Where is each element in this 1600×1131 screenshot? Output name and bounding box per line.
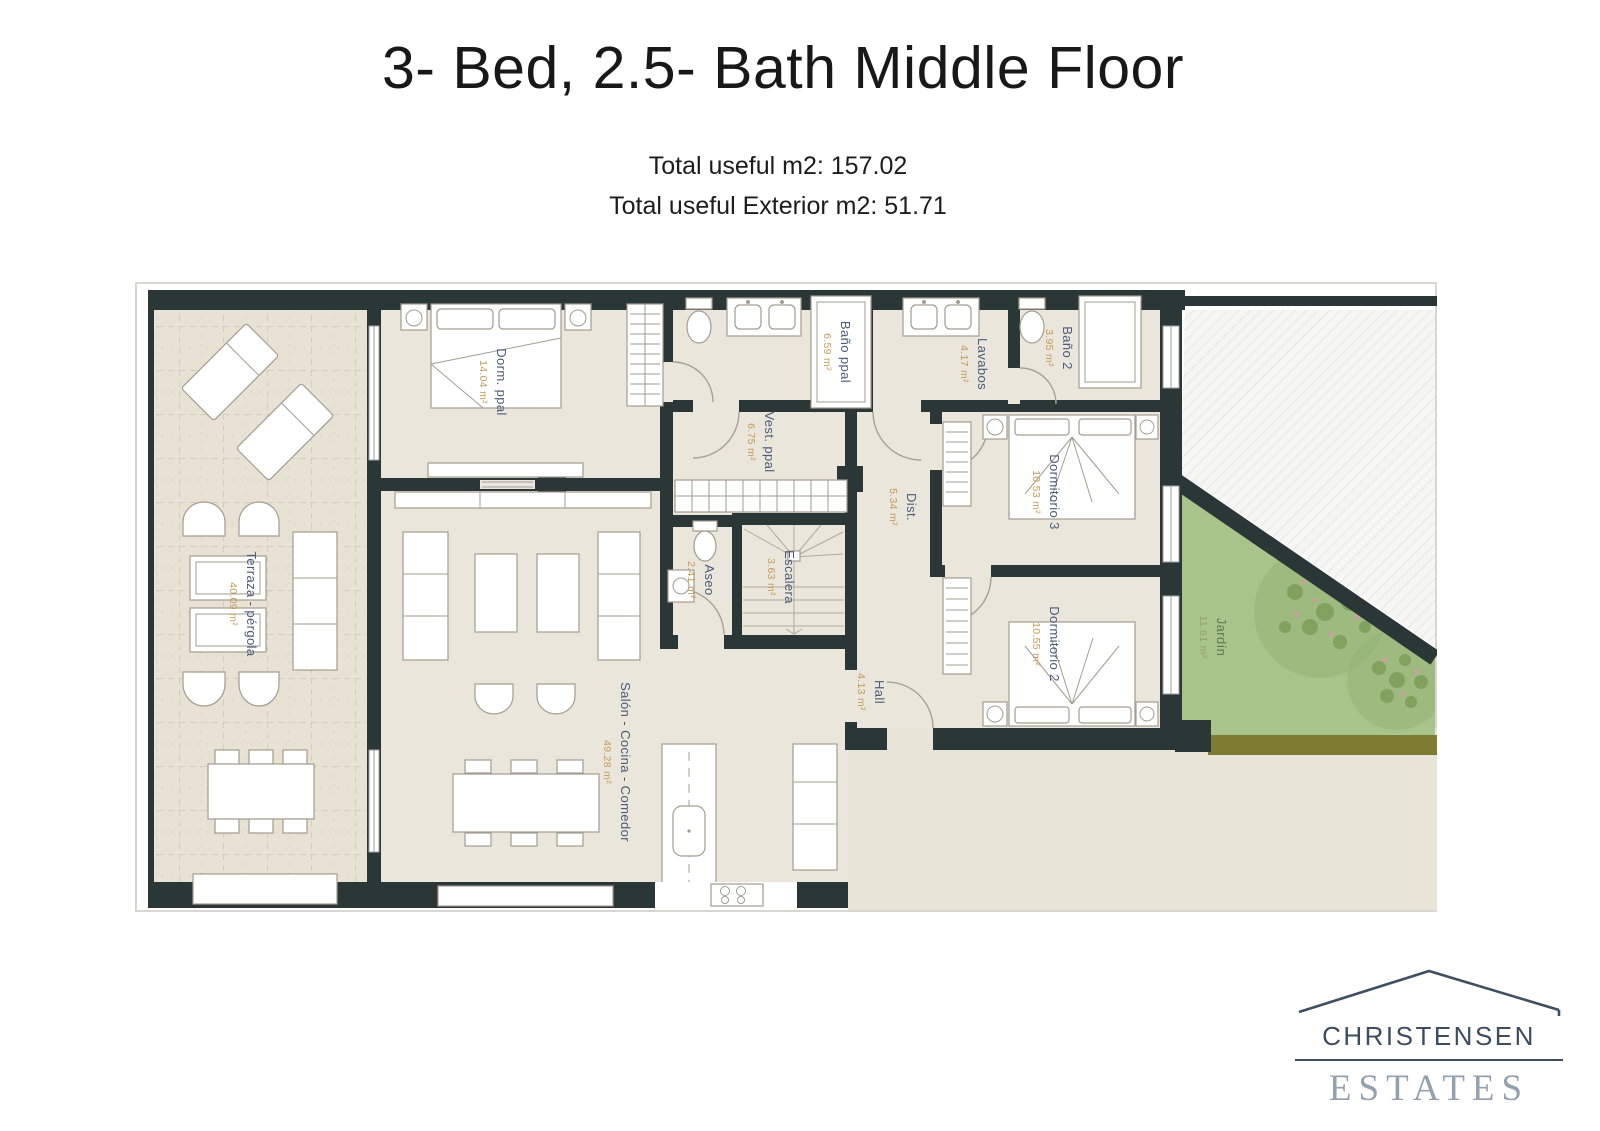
table-icon [208, 764, 314, 819]
wardrobe-icon [627, 304, 663, 406]
planter-icon [293, 532, 337, 670]
nightstand-icon [1136, 702, 1158, 726]
svg-text:4.13 m²: 4.13 m² [855, 673, 867, 711]
window-icon [369, 750, 379, 852]
table-icon [453, 774, 599, 832]
svg-text:Dormitorio 2: Dormitorio 2 [1047, 606, 1062, 682]
svg-text:Jardín: Jardín [1214, 618, 1229, 657]
logo-type: ESTATES [1295, 1067, 1563, 1110]
nightstand-icon [1136, 415, 1158, 439]
armchair-icon [475, 684, 513, 714]
total-useful-m2: Total useful m2: 157.02 [0, 146, 1556, 186]
floor-plan-container: Terraza - pérgola 40.09 m² Dorm. ppal 14… [135, 282, 1437, 912]
svg-text:11.61 m²: 11.61 m² [1197, 615, 1209, 658]
window-icon [1163, 596, 1179, 694]
svg-text:Aseo: Aseo [702, 564, 717, 595]
svg-text:Lavabos: Lavabos [975, 338, 990, 390]
armchair-icon [239, 502, 279, 536]
armchair-icon [537, 684, 575, 714]
svg-text:Terraza - pérgola: Terraza - pérgola [244, 551, 259, 656]
kitchen-island-icon [662, 744, 716, 892]
svg-text:3.95 m²: 3.95 m² [1043, 329, 1055, 367]
logo-roof-icon [1295, 966, 1563, 1016]
sideboard-icon [428, 463, 583, 477]
toilet-icon [693, 521, 717, 561]
wardrobe-icon [943, 578, 971, 674]
planter-icon [193, 874, 337, 904]
svg-text:5.34 m²: 5.34 m² [887, 488, 899, 526]
svg-text:Escalera: Escalera [782, 550, 797, 604]
armchair-icon [183, 502, 225, 536]
shower-icon [1079, 296, 1141, 388]
wall-top-right [1181, 296, 1437, 306]
counter-icon [438, 886, 613, 906]
dining-set [453, 760, 599, 846]
svg-text:49.28 m²: 49.28 m² [601, 740, 613, 784]
svg-text:Hall: Hall [872, 680, 887, 704]
walkin-closet [675, 480, 847, 512]
stove-icon [655, 882, 797, 908]
svg-text:10.53 m²: 10.53 m² [1030, 470, 1042, 514]
svg-text:4.17 m²: 4.17 m² [958, 345, 970, 383]
svg-text:Dormitorio 3: Dormitorio 3 [1047, 454, 1062, 530]
svg-text:10.55 m²: 10.55 m² [1030, 622, 1042, 666]
svg-text:6.75 m²: 6.75 m² [745, 423, 757, 461]
svg-text:Dorm. ppal: Dorm. ppal [494, 348, 509, 416]
svg-text:14.04 m²: 14.04 m² [477, 360, 489, 404]
double-sink-icon [727, 298, 801, 336]
floor-plan: Terraza - pérgola 40.09 m² Dorm. ppal 14… [135, 282, 1437, 912]
toilet-icon [1019, 298, 1045, 343]
svg-text:Vest. ppal: Vest. ppal [762, 411, 777, 472]
double-sink-icon [903, 298, 979, 336]
svg-text:Baño 2: Baño 2 [1060, 326, 1075, 370]
wardrobe-icon [943, 422, 971, 506]
svg-text:Dist.: Dist. [904, 493, 919, 521]
svg-text:Baño ppal: Baño ppal [838, 321, 853, 383]
total-useful-exterior-m2: Total useful Exterior m2: 51.71 [0, 186, 1556, 226]
garden-soil-strip [1208, 735, 1437, 755]
svg-text:Salón - Cocina - Comedor: Salón - Cocina - Comedor [618, 682, 633, 842]
toilet-icon [686, 298, 712, 343]
window-icon [1163, 486, 1179, 562]
page: 3- Bed, 2.5- Bath Middle Floor Total use… [0, 0, 1600, 1131]
tv-sideboard-icon [395, 492, 651, 508]
subtitle-block: Total useful m2: 157.02 Total useful Ext… [0, 146, 1556, 226]
svg-text:2.41 m²: 2.41 m² [685, 561, 697, 599]
lavabos-fixtures [903, 298, 979, 336]
window-icon [1163, 326, 1179, 388]
terrace-dining-set [208, 750, 314, 833]
logo-name: CHRISTENSEN [1295, 1021, 1563, 1061]
svg-text:6.59 m²: 6.59 m² [821, 333, 833, 371]
kitchen-counter-icon [793, 744, 837, 870]
wall-left [148, 290, 154, 908]
svg-text:40.09 m²: 40.09 m² [227, 582, 239, 626]
christensen-estates-logo: CHRISTENSEN ESTATES [1295, 966, 1563, 1110]
svg-text:3.63 m²: 3.63 m² [765, 558, 777, 596]
wall-garden-stub [1175, 720, 1211, 752]
page-title: 3- Bed, 2.5- Bath Middle Floor [0, 34, 1566, 102]
exterior-ground [848, 728, 1437, 910]
window-icon [369, 326, 379, 460]
